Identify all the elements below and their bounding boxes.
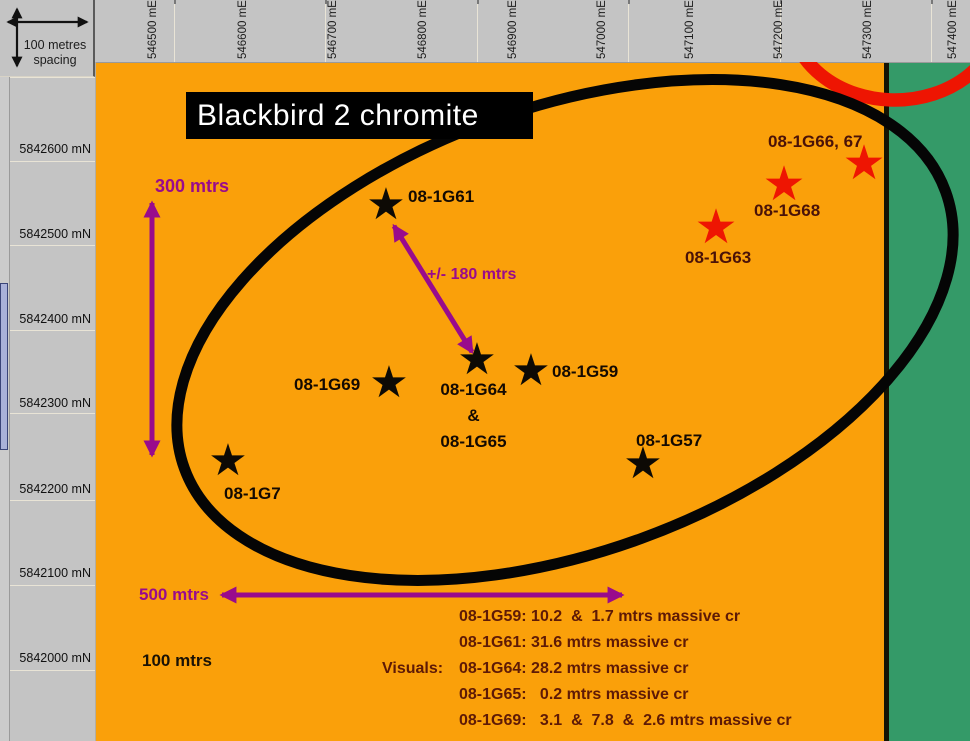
hole-label-08-1G69: 08-1G69	[294, 375, 360, 395]
star-icon-08-1G69: ★	[369, 361, 408, 405]
row-divider	[9, 670, 95, 671]
easting-label: 546700 mE	[327, 0, 339, 59]
map-title: Blackbird 2 chromite	[186, 92, 533, 139]
northing-label: 5842300 mN	[5, 396, 91, 410]
measure-500mtrs-label: 500 mtrs	[139, 585, 209, 605]
measure-180mtrs-label: +/- 180 mtrs	[427, 266, 516, 284]
easting-label: 546800 mE	[417, 0, 429, 59]
row-divider	[9, 77, 95, 78]
column-tick	[477, 0, 479, 4]
star-icon-08-1G7: ★	[208, 439, 247, 483]
column-tick	[628, 0, 630, 4]
visuals-line-5: 08-1G69: 3.1 & 7.8 & 2.6 mtrs massive cr	[459, 712, 792, 730]
hole-label-line: &	[411, 403, 536, 429]
hole-label-08-1G66-67: 08-1G66, 67	[768, 132, 863, 152]
row-divider	[9, 585, 95, 586]
hole-label-08-1G59: 08-1G59	[552, 362, 618, 382]
column-divider	[628, 0, 629, 62]
column-divider	[931, 0, 932, 62]
scale-box: 100 metres spacing	[0, 0, 95, 77]
visuals-heading: Visuals:	[382, 660, 443, 678]
row-selection-highlight[interactable]	[0, 283, 8, 450]
visuals-line-1: 08-1G59: 10.2 & 1.7 mtrs massive cr	[459, 608, 740, 626]
northing-label: 5842200 mN	[5, 482, 91, 496]
hole-label-08-1G7: 08-1G7	[224, 484, 281, 504]
row-divider	[9, 245, 95, 246]
hole-label-line: 08-1G65	[411, 429, 536, 455]
easting-label: 546500 mE	[147, 0, 159, 59]
star-icon-08-1G63: ★	[694, 204, 737, 252]
visuals-line-4: 08-1G65: 0.2 mtrs massive cr	[459, 686, 688, 704]
visuals-line-2: 08-1G61: 31.6 mtrs massive cr	[459, 634, 688, 652]
row-divider	[9, 330, 95, 331]
row-divider	[9, 500, 95, 501]
star-icon-08-1G64-65: ★	[457, 338, 496, 382]
northing-label: 5842600 mN	[5, 142, 91, 156]
row-divider	[9, 413, 95, 414]
northing-label: 5842100 mN	[5, 566, 91, 580]
column-divider	[477, 0, 478, 62]
star-icon-08-1G61: ★	[366, 183, 405, 227]
easting-label: 547300 mE	[862, 0, 874, 59]
hole-label-08-1G68: 08-1G68	[754, 201, 820, 221]
measure-100mtrs-label: 100 mtrs	[142, 651, 212, 671]
hole-label-08-1G64-65: 08-1G64 & 08-1G65	[411, 377, 536, 455]
northing-sidebar-strip: 5842600 mN 5842500 mN 5842400 mN 5842300…	[0, 62, 96, 741]
scale-box-line1: 100 metres	[18, 38, 92, 53]
easting-label: 546900 mE	[507, 0, 519, 59]
column-divider	[325, 0, 326, 62]
northing-label: 5842400 mN	[5, 312, 91, 326]
row-divider	[9, 161, 95, 162]
scale-box-line2: spacing	[18, 53, 92, 68]
northing-label: 5842500 mN	[5, 227, 91, 241]
hole-label-08-1G57: 08-1G57	[636, 431, 702, 451]
easting-label: 547200 mE	[773, 0, 785, 59]
hole-label-08-1G61: 08-1G61	[408, 187, 474, 207]
visuals-line-3: 08-1G64: 28.2 mtrs massive cr	[459, 660, 688, 678]
column-tick	[931, 0, 933, 4]
northing-label: 5842000 mN	[5, 651, 91, 665]
column-divider	[174, 0, 175, 62]
easting-label: 547400 mE	[947, 0, 959, 59]
column-tick	[174, 0, 176, 4]
hole-label-08-1G63: 08-1G63	[685, 248, 751, 268]
row-header-strip[interactable]	[0, 0, 10, 741]
scale-box-text: 100 metres spacing	[18, 38, 92, 68]
easting-label: 547100 mE	[684, 0, 696, 59]
easting-header-strip: 546500 mE 546600 mE 546700 mE 546800 mE …	[0, 0, 970, 63]
easting-label: 546600 mE	[237, 0, 249, 59]
measure-300mtrs-label: 300 mtrs	[155, 176, 229, 197]
hole-label-line: 08-1G64	[411, 377, 536, 403]
easting-label: 547000 mE	[596, 0, 608, 59]
map-area-green	[884, 62, 970, 741]
